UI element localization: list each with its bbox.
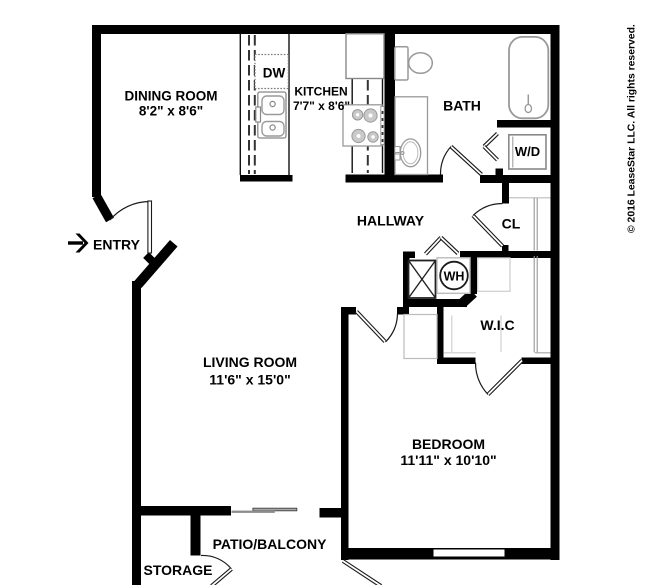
- svg-text:© 2016 LeaseStar LLC. All righ: © 2016 LeaseStar LLC. All rights reserve…: [627, 24, 638, 233]
- svg-text:DINING ROOM: DINING ROOM: [125, 89, 218, 104]
- svg-text:11'6" x 15'0": 11'6" x 15'0": [209, 372, 290, 388]
- svg-text:CL: CL: [502, 216, 521, 232]
- svg-text:KITCHEN: KITCHEN: [294, 85, 347, 99]
- svg-text:STORAGE: STORAGE: [144, 562, 213, 578]
- svg-text:DW: DW: [263, 66, 286, 81]
- svg-text:W.I.C: W.I.C: [480, 317, 514, 333]
- svg-text:ENTRY: ENTRY: [93, 237, 141, 253]
- svg-text:8'2" x 8'6": 8'2" x 8'6": [139, 104, 203, 119]
- svg-text:7'7" x 8'6": 7'7" x 8'6": [293, 99, 350, 113]
- svg-text:LIVING ROOM: LIVING ROOM: [203, 354, 297, 370]
- svg-text:PATIO/BALCONY: PATIO/BALCONY: [213, 536, 327, 552]
- svg-text:BATH: BATH: [443, 98, 481, 114]
- svg-text:HALLWAY: HALLWAY: [357, 213, 425, 229]
- svg-text:W/D: W/D: [515, 144, 540, 159]
- svg-text:BEDROOM: BEDROOM: [412, 436, 485, 452]
- svg-text:11'11" x 10'10": 11'11" x 10'10": [400, 452, 496, 468]
- svg-text:WH: WH: [444, 270, 465, 284]
